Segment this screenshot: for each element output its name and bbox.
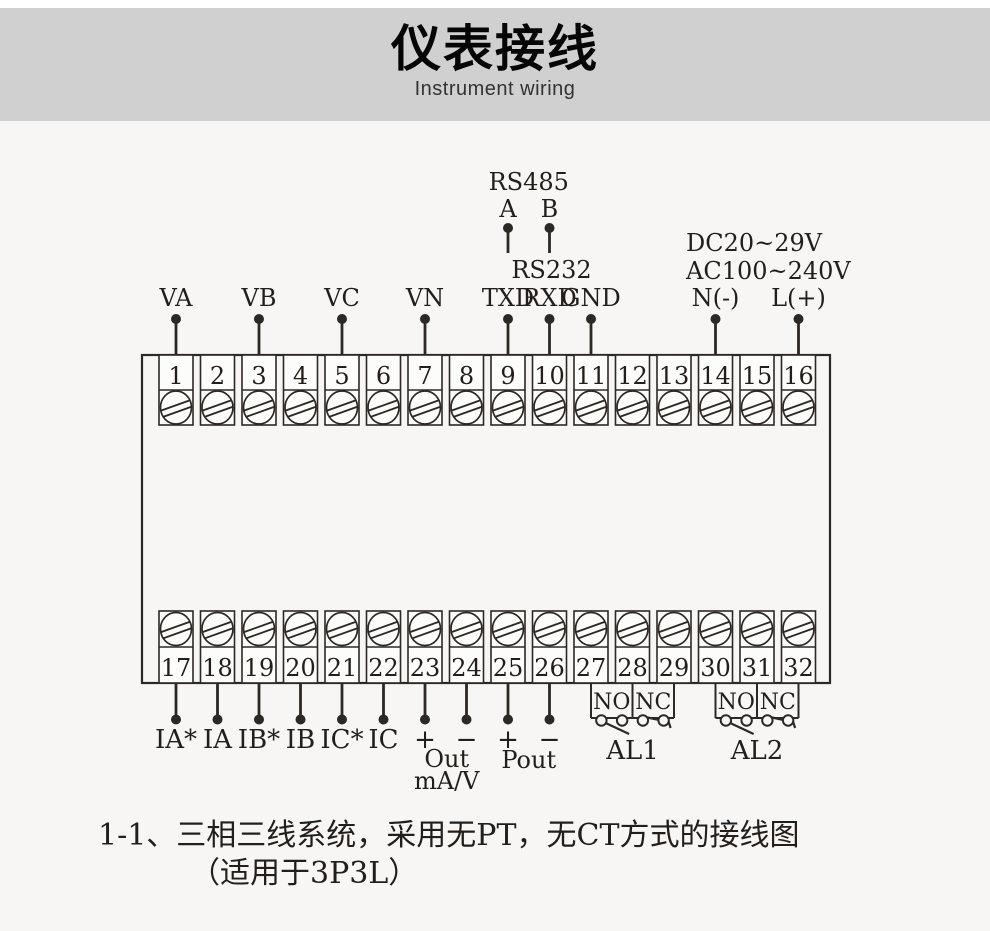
- terminal-number: 32: [783, 654, 814, 682]
- connection-dot-icon: [420, 314, 430, 324]
- terminal-number: 17: [161, 654, 192, 682]
- terminal-number: 25: [493, 654, 524, 682]
- caption-line-2: （适用于3P3L）: [190, 855, 799, 893]
- page: 仪表接线 Instrument wiring 12345678910111213…: [0, 0, 990, 931]
- terminal-number: 16: [783, 362, 814, 390]
- screw-terminal-icon: [575, 391, 607, 424]
- wiring-diagram: 1234567891011121314151617181920212223242…: [0, 0, 990, 931]
- screw-terminal-icon: [202, 391, 234, 424]
- connection-dot-icon: [171, 314, 181, 324]
- terminal-number: 12: [617, 362, 648, 390]
- terminal-number: 23: [410, 654, 441, 682]
- screw-terminal-icon: [658, 613, 690, 646]
- connection-dot-icon: [794, 314, 804, 324]
- relay-nc-label: NC: [760, 690, 796, 715]
- relay-contact-icon: [762, 715, 772, 725]
- screw-terminal-icon: [700, 613, 732, 646]
- analog-output-unit: mA/V: [414, 767, 480, 795]
- screw-terminal-icon: [160, 613, 192, 646]
- connection-dot-icon: [545, 715, 555, 725]
- screw-terminal-icon: [285, 613, 317, 646]
- terminal-number: 24: [451, 654, 482, 682]
- connection-dot-icon: [545, 314, 555, 324]
- relay-contact-icon: [741, 715, 751, 725]
- connection-dot-icon: [711, 314, 721, 324]
- terminal-number: 9: [500, 362, 515, 390]
- relay-no-label: NO: [593, 690, 630, 715]
- terminal-number: 27: [576, 654, 607, 682]
- rs485-title: RS485: [489, 168, 569, 196]
- connection-dot-icon: [337, 715, 347, 725]
- terminal-number: 4: [293, 362, 308, 390]
- screw-terminal-icon: [534, 391, 566, 424]
- screw-terminal-icon: [160, 391, 192, 424]
- relay-label: AL2: [730, 736, 784, 766]
- rs232-title: RS232: [511, 256, 591, 284]
- pin-label: IB: [286, 725, 315, 755]
- screw-terminal-icon: [368, 613, 400, 646]
- connection-dot-icon: [503, 715, 513, 725]
- screw-terminal-icon: [741, 391, 773, 424]
- terminal-number: 20: [285, 654, 316, 682]
- terminal-number: 28: [617, 654, 648, 682]
- connection-dot-icon: [503, 314, 513, 324]
- terminal-number: 3: [251, 362, 266, 390]
- terminal-number: 8: [459, 362, 474, 390]
- screw-terminal-icon: [617, 613, 649, 646]
- screw-terminal-icon: [741, 613, 773, 646]
- screw-terminal-icon: [243, 391, 275, 424]
- screw-terminal-icon: [575, 613, 607, 646]
- terminal-number: 7: [417, 362, 432, 390]
- terminal-number: 14: [700, 362, 731, 390]
- screw-terminal-icon: [492, 391, 524, 424]
- terminal-number: 2: [210, 362, 225, 390]
- screw-terminal-icon: [617, 391, 649, 424]
- screw-terminal-icon: [700, 391, 732, 424]
- screw-terminal-icon: [451, 613, 483, 646]
- terminal-number: 18: [202, 654, 233, 682]
- terminal-number: 29: [659, 654, 690, 682]
- terminal-number: 13: [659, 362, 690, 390]
- connection-dot-icon: [296, 715, 306, 725]
- pin-label: VN: [405, 284, 444, 312]
- terminal-number: 6: [376, 362, 391, 390]
- relay-contact-icon: [638, 715, 648, 725]
- connection-dot-icon: [254, 314, 264, 324]
- terminal-number: 21: [327, 654, 358, 682]
- relay-contact-icon: [658, 715, 668, 725]
- terminal-number: 22: [368, 654, 399, 682]
- pin-label: IC: [368, 725, 398, 755]
- connection-dot-icon: [337, 314, 347, 324]
- pin-label: IA: [203, 725, 233, 755]
- screw-terminal-icon: [326, 391, 358, 424]
- pin-label: IA*: [155, 725, 197, 755]
- connection-dot-icon: [254, 715, 264, 725]
- pin-label: VB: [241, 284, 277, 312]
- relay-label: AL1: [605, 736, 659, 766]
- screw-terminal-icon: [492, 613, 524, 646]
- pin-label: GND: [561, 284, 620, 312]
- connection-dot-icon: [586, 314, 596, 324]
- pin-label: VC: [323, 284, 360, 312]
- relay-contact-icon: [721, 715, 731, 725]
- screw-terminal-icon: [534, 613, 566, 646]
- screw-terminal-icon: [783, 613, 815, 646]
- figure-caption: 1-1、三相三线系统，采用无PT，无CT方式的接线图 （适用于3P3L）: [98, 817, 799, 893]
- connection-dot-icon: [462, 715, 472, 725]
- pin-label: N(-): [692, 284, 740, 312]
- terminal-number: 11: [576, 362, 607, 390]
- terminal-number: 31: [742, 654, 773, 682]
- caption-line-1: 1-1、三相三线系统，采用无PT，无CT方式的接线图: [98, 817, 799, 855]
- terminal-number: 15: [742, 362, 773, 390]
- rs485-pin-b-label: B: [541, 195, 559, 223]
- rs485-pin-a-label: A: [498, 195, 517, 223]
- terminal-number: 30: [700, 654, 731, 682]
- pin-label: IB*: [238, 725, 280, 755]
- pin-label: VA: [158, 284, 193, 312]
- screw-terminal-icon: [326, 613, 358, 646]
- relay-nc-label: NC: [635, 690, 671, 715]
- terminal-number: 5: [334, 362, 349, 390]
- connection-dot-icon: [213, 715, 223, 725]
- pin-label: L(+): [771, 284, 826, 312]
- power-rating-dc: DC20~29V: [686, 229, 823, 257]
- pulse-output-label: Pout: [501, 746, 556, 774]
- connection-dot-icon: [379, 715, 389, 725]
- screw-terminal-icon: [451, 391, 483, 424]
- power-rating-ac: AC100~240V: [685, 257, 851, 285]
- screw-terminal-icon: [202, 613, 234, 646]
- terminal-number: 10: [534, 362, 565, 390]
- terminal-number: 26: [534, 654, 565, 682]
- screw-terminal-icon: [409, 613, 441, 646]
- pin-label: IC*: [320, 725, 363, 755]
- screw-terminal-icon: [243, 613, 275, 646]
- connection-dot-icon: [420, 715, 430, 725]
- connection-dot-icon: [171, 715, 181, 725]
- terminal-number: 1: [168, 362, 183, 390]
- relay-contact-icon: [596, 715, 606, 725]
- screw-terminal-icon: [409, 391, 441, 424]
- screw-terminal-icon: [783, 391, 815, 424]
- relay-contact-icon: [617, 715, 627, 725]
- screw-terminal-icon: [658, 391, 690, 424]
- terminal-number: 19: [244, 654, 275, 682]
- screw-terminal-icon: [285, 391, 317, 424]
- screw-terminal-icon: [368, 391, 400, 424]
- relay-contact-icon: [783, 715, 793, 725]
- relay-no-label: NO: [718, 690, 755, 715]
